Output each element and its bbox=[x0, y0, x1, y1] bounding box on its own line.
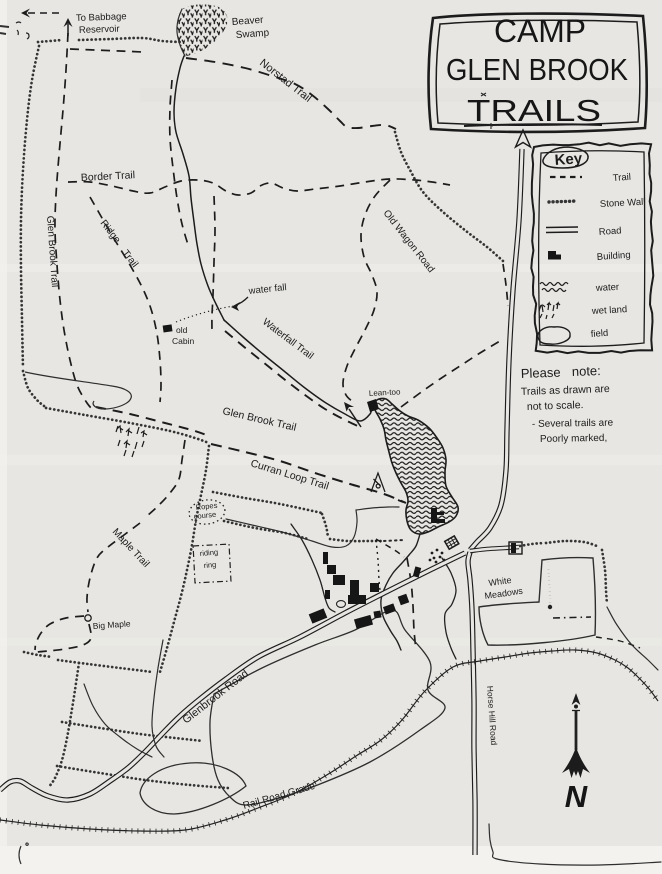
svg-text:riding: riding bbox=[199, 547, 218, 558]
svg-text:Reservoir: Reservoir bbox=[79, 24, 120, 36]
svg-text:Lean-too: Lean-too bbox=[369, 387, 402, 398]
svg-text:wet land: wet land bbox=[591, 304, 628, 317]
svg-text:Building: Building bbox=[596, 250, 630, 263]
svg-text:CAMP: CAMP bbox=[494, 13, 586, 49]
svg-text:not to scale.: not to scale. bbox=[527, 399, 584, 413]
svg-text:Swamp: Swamp bbox=[235, 28, 269, 41]
svg-text:Beaver: Beaver bbox=[231, 15, 264, 28]
svg-text:Please: Please bbox=[521, 365, 561, 381]
svg-text:Cabin: Cabin bbox=[172, 336, 194, 346]
svg-text:ring: ring bbox=[203, 560, 216, 570]
svg-text:N: N bbox=[565, 779, 588, 814]
svg-text:To Babbage: To Babbage bbox=[76, 11, 127, 24]
svg-text:Trail: Trail bbox=[612, 172, 631, 184]
svg-text:- Several trails are: - Several trails are bbox=[532, 418, 614, 430]
svg-text:field: field bbox=[590, 328, 608, 340]
svg-text:old: old bbox=[176, 325, 188, 335]
svg-text:water: water bbox=[595, 282, 620, 294]
svg-text:Road: Road bbox=[598, 225, 621, 238]
svg-text:Key: Key bbox=[554, 150, 583, 169]
svg-text:note:: note: bbox=[572, 363, 601, 379]
svg-text:Poorly marked,: Poorly marked, bbox=[540, 433, 607, 445]
svg-text:TRAILS: TRAILS bbox=[467, 93, 601, 128]
svg-text:GLEN BROOK: GLEN BROOK bbox=[446, 52, 628, 87]
